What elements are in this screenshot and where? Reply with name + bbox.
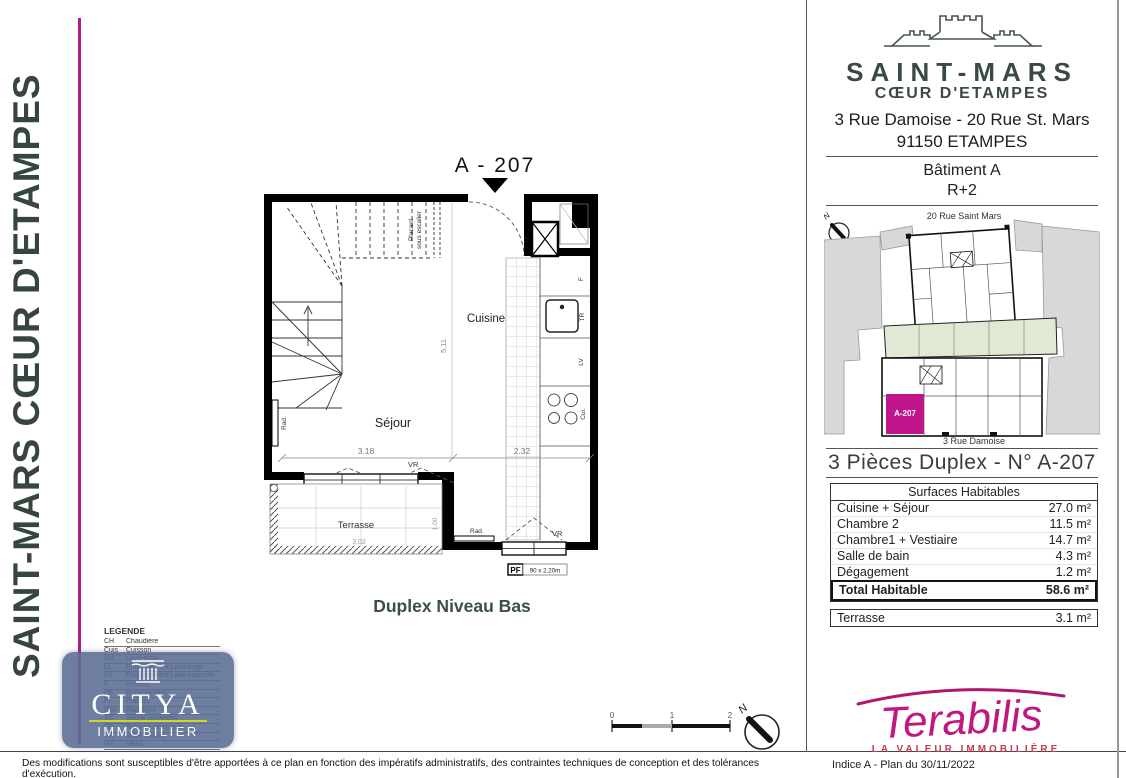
- total-value: 58.6 m²: [1046, 582, 1089, 599]
- surface-row: Dégagement1.2 m²: [831, 565, 1097, 580]
- unit-title: A - 207: [455, 154, 536, 177]
- address-line-1: 3 Rue Damoise - 20 Rue St. Mars: [807, 110, 1117, 130]
- brand-subtitle: CŒUR D'ETAMPES: [807, 85, 1117, 103]
- courtyard: [884, 318, 1057, 358]
- surface-rows: Cuisine + Séjour27.0 m²Chambre 211.5 m²C…: [831, 501, 1097, 580]
- terrasse-value: 3.1 m²: [1056, 610, 1091, 626]
- rad-label-2: Rad.: [470, 528, 484, 535]
- dim-511: 5.11: [439, 339, 448, 353]
- pf2-tag: PF 90 x 2.20m: [508, 564, 567, 575]
- room-label-cuisine: Cuisine: [467, 313, 505, 325]
- svg-text:N: N: [824, 211, 832, 222]
- street-bottom-label: 3 Rue Damoise: [943, 436, 1005, 446]
- room-label-sejour: Séjour: [375, 416, 411, 430]
- accent-line: [78, 18, 81, 744]
- side-banner-title: SAINT-MARS CŒUR D'ETAMPES: [6, 88, 68, 678]
- brand-name: SAINT-MARS: [807, 57, 1117, 88]
- plan-caption: Duplex Niveau Bas: [373, 596, 531, 616]
- address-line-2: 91150 ETAMPES: [807, 132, 1117, 152]
- dishwasher-label: LV: [578, 358, 585, 366]
- room-label-terrasse: Terrasse: [338, 520, 374, 531]
- scale-tick-0: 0: [610, 711, 615, 720]
- surface-table: Surfaces Habitables Cuisine + Séjour27.0…: [830, 483, 1098, 627]
- vr-label-2: VR: [552, 529, 563, 538]
- terrasse-label: Terrasse: [837, 610, 1056, 626]
- total-label: Total Habitable: [839, 582, 1046, 599]
- pf2-label: PF: [510, 566, 520, 575]
- surface-row: Salle de bain4.3 m²: [831, 549, 1097, 565]
- under-stair-closet: Placard sous escalier: [408, 202, 440, 258]
- dim-302: 3.02: [352, 539, 366, 546]
- vr-label-1: VR: [408, 460, 419, 469]
- surface-total-row: Total Habitable 58.6 m²: [831, 580, 1097, 601]
- dim-318: 3.18: [358, 446, 375, 456]
- terrasse-row-box: Terrasse 3.1 m²: [830, 609, 1098, 627]
- terabilis-name: Terabilis: [879, 691, 1044, 748]
- building-label: Bâtiment A: [807, 162, 1117, 180]
- terrace: Terrasse 3.02 1.00: [270, 484, 442, 554]
- placard-label: Placard: [408, 219, 415, 241]
- terabilis-logo: Terabilis LA VALEUR IMMOBILIÈRE: [836, 676, 1092, 758]
- page-edge: [1117, 0, 1119, 778]
- pf2-size: 90 x 2.20m: [530, 568, 561, 575]
- sink-label: TR: [579, 312, 586, 321]
- floor-plan-drawing: A - 207: [256, 146, 606, 626]
- fridge-label: F: [578, 277, 585, 281]
- unit-heading: 3 Pièces Duplex - N° A-207: [807, 451, 1117, 475]
- divider: [826, 205, 1098, 206]
- te-label: TE: [524, 234, 531, 243]
- dim-100: 1.00: [432, 517, 439, 530]
- rad-label-1: Rad.: [281, 416, 288, 430]
- legend-title: LEGENDE: [104, 626, 220, 636]
- scale-bar: 0 1 2: [600, 702, 740, 748]
- floor-label: R+2: [807, 182, 1117, 200]
- hob-label: Cui.: [580, 408, 587, 420]
- citya-watermark: CITYA IMMOBILIER: [62, 652, 234, 748]
- street-top-label: 20 Rue Saint Mars: [927, 211, 1002, 221]
- terabilis-tagline: LA VALEUR IMMOBILIÈRE: [872, 742, 1061, 755]
- surface-row: Cuisine + Séjour27.0 m²: [831, 501, 1097, 517]
- surface-row: Chambre1 + Vestiaire14.7 m²: [831, 533, 1097, 549]
- revision-text: Indice A - Plan du 30/11/2022: [832, 759, 975, 771]
- castle-logo-icon: [880, 6, 1046, 56]
- entrance-marker-icon: [482, 178, 508, 193]
- divider: [826, 477, 1098, 478]
- surface-row: Chambre 211.5 m²: [831, 517, 1097, 533]
- disclaimer-text: Des modifications sont susceptibles d'êt…: [22, 758, 792, 778]
- column-icon: [126, 656, 170, 686]
- unit-a207-label: A-207: [894, 409, 916, 418]
- building-south: A-207: [882, 358, 1042, 436]
- dim-line-horizontal: [278, 454, 594, 462]
- citya-subtitle: IMMOBILIER: [62, 724, 234, 739]
- dim-232: 2.32: [514, 446, 531, 456]
- legend-row: CHChaudière: [104, 638, 220, 647]
- building-north: [906, 225, 1016, 328]
- citya-name: CITYA: [62, 691, 234, 719]
- radiator-left: Rad.: [272, 400, 288, 446]
- divider: [826, 448, 1098, 449]
- placard-label-2: sous escalier: [416, 210, 423, 249]
- entry-door-swing: [469, 202, 524, 256]
- divider: [826, 156, 1098, 157]
- scale-tick-1: 1: [670, 711, 675, 720]
- surface-table-header: Surfaces Habitables: [831, 484, 1097, 501]
- kitchen-tiling: [506, 258, 540, 540]
- compass-north-label: N: [736, 702, 750, 716]
- plan-sheet: SAINT-MARS CŒUR D'ETAMPES A - 207: [0, 0, 1126, 778]
- site-map: 20 Rue Saint Mars N: [824, 208, 1100, 446]
